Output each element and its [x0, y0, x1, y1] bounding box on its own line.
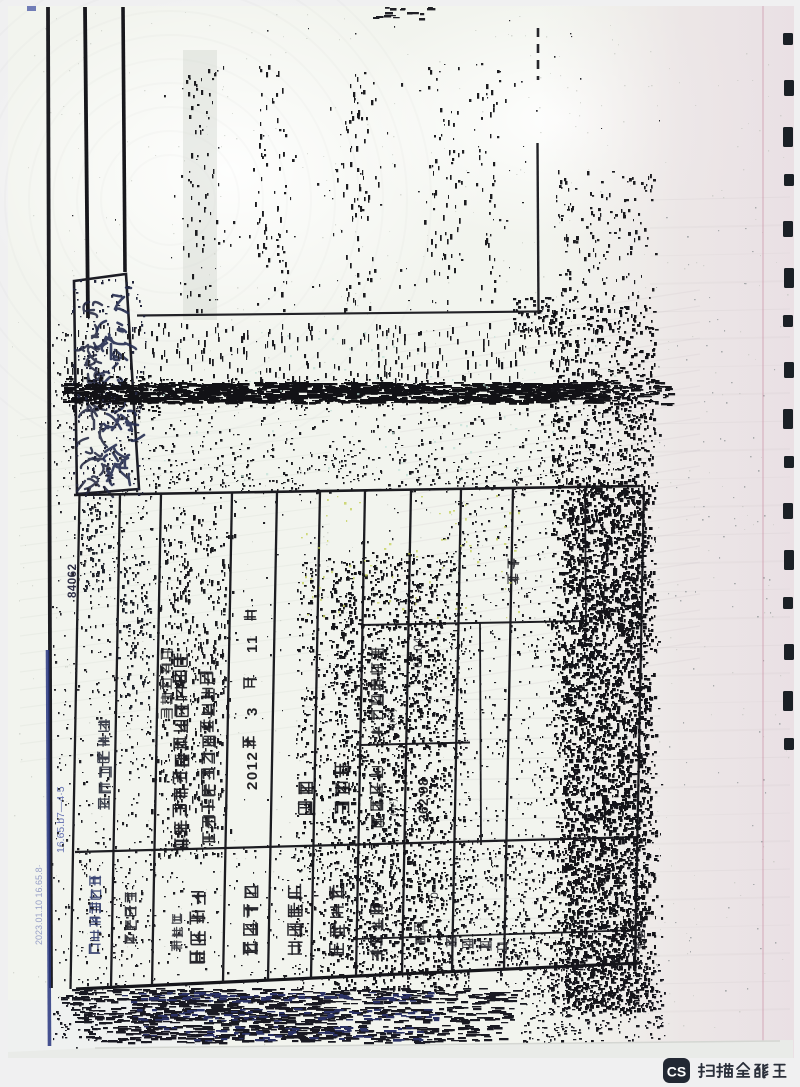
- svg-text:CS: CS: [667, 1064, 686, 1080]
- svg-text:2023.01.10 16.65.8·: 2023.01.10 16.65.8·: [34, 864, 44, 945]
- svg-text:-0-: -0-: [429, 888, 441, 902]
- svg-text:3: 3: [244, 708, 261, 716]
- svg-text:11: 11: [244, 634, 261, 653]
- svg-text:2012: 2012: [244, 751, 261, 790]
- svg-text:16.65.b7—4·5: 16.65.b7—4·5: [55, 786, 67, 853]
